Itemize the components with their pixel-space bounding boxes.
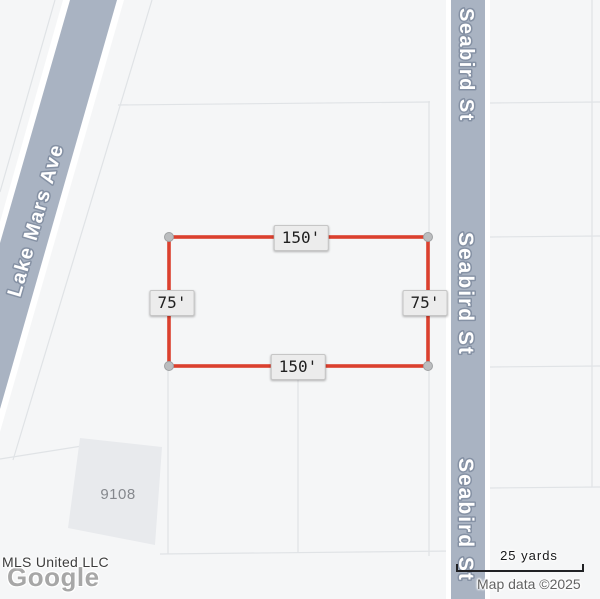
lot-vertex-handle[interactable] — [165, 233, 174, 242]
lot-vertex-handle[interactable] — [165, 362, 174, 371]
dimension-label-top: 150' — [274, 225, 329, 251]
map-data-attribution: Map data ©2025 — [477, 576, 581, 592]
dimension-label-left: 75' — [150, 290, 195, 316]
mls-attribution: MLS United LLC — [2, 554, 109, 570]
lot-vertex-handle[interactable] — [424, 362, 433, 371]
scale-bar: 25 yards — [456, 548, 584, 572]
road-label-seabird-middle: Seabird St — [454, 232, 477, 356]
scale-bar-rule — [456, 564, 584, 572]
dimension-label-bottom: 150' — [271, 354, 326, 380]
lot-vertex-handle[interactable] — [424, 233, 433, 242]
scale-bar-label: 25 yards — [456, 548, 584, 563]
dimension-label-right: 75' — [403, 290, 448, 316]
road-label-seabird-top: Seabird St — [455, 8, 477, 122]
map-canvas[interactable]: 9108 Lake Mars Ave Seabird St Seabird St… — [0, 0, 600, 599]
building-number-label: 9108 — [100, 486, 135, 503]
map-graphics: 9108 Lake Mars Ave Seabird St Seabird St… — [0, 0, 600, 599]
